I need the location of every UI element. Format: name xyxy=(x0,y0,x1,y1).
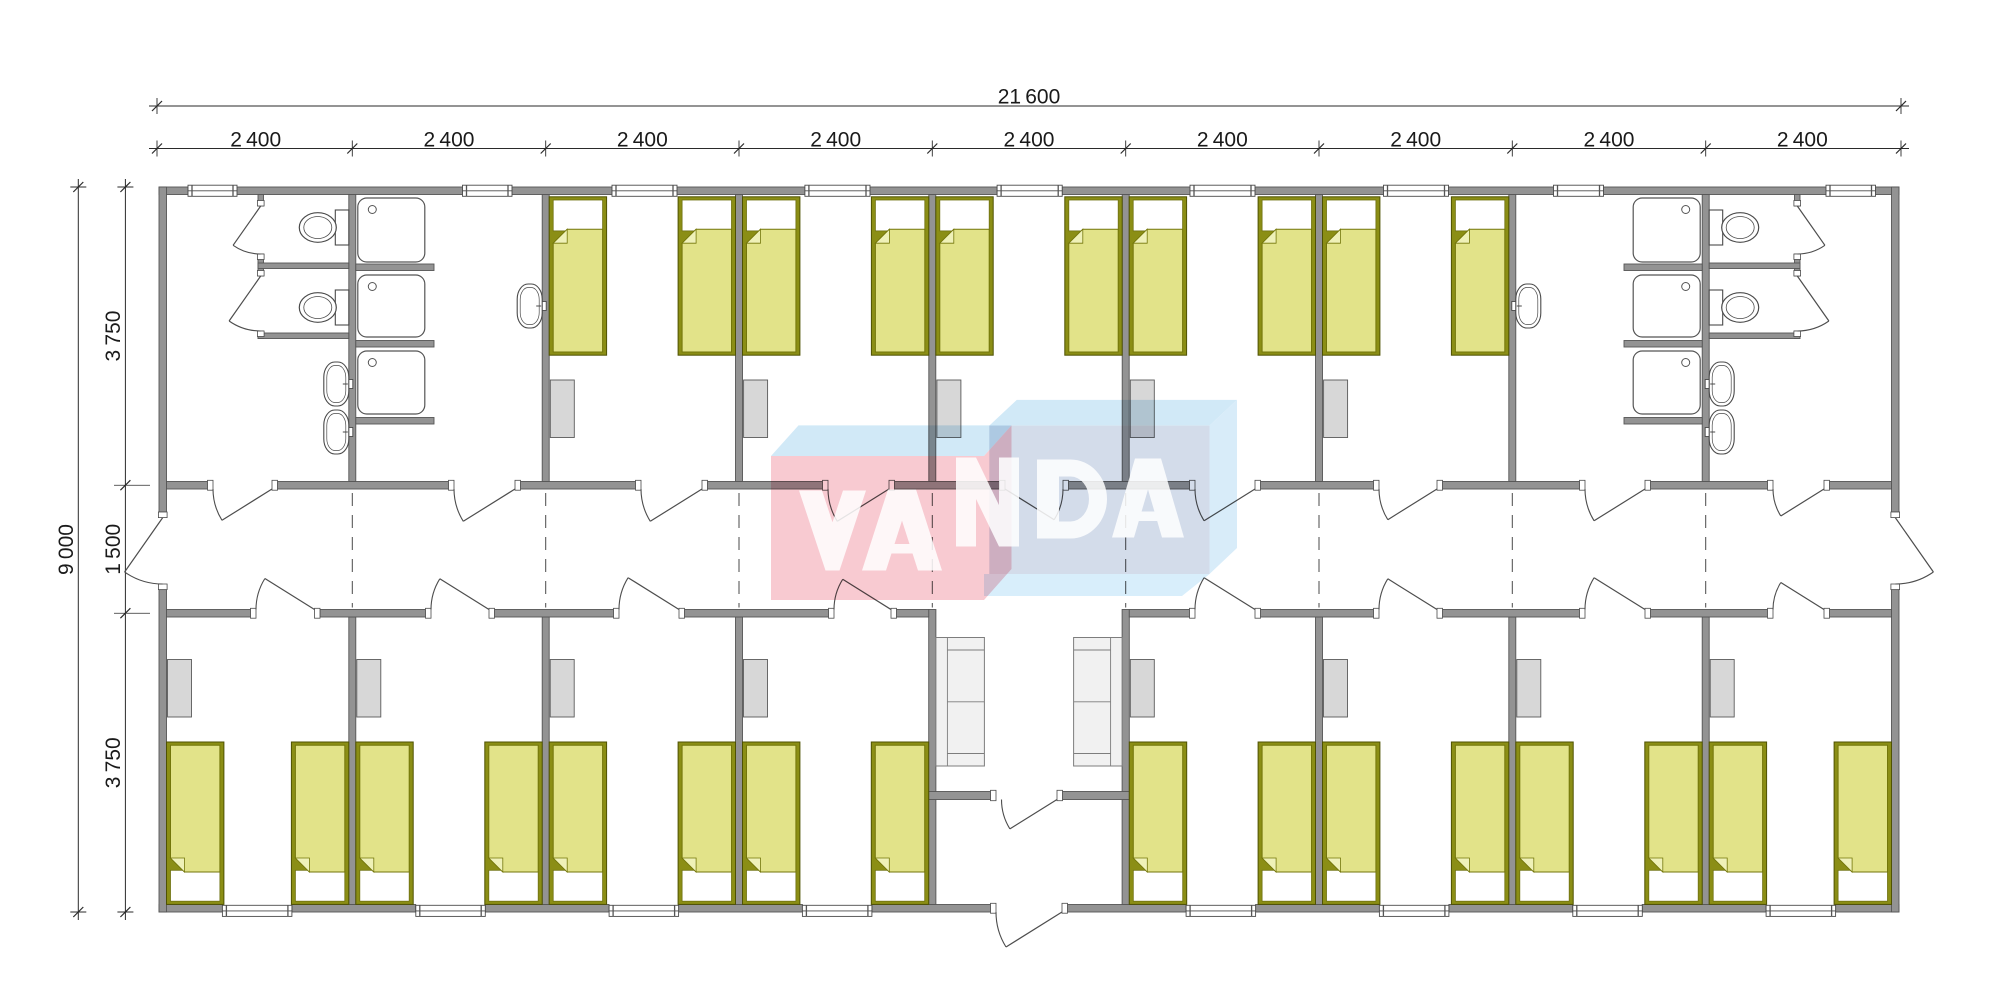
svg-text:21 600: 21 600 xyxy=(998,86,1061,109)
svg-text:2 400: 2 400 xyxy=(1777,129,1828,152)
svg-text:2 400: 2 400 xyxy=(1197,129,1248,152)
svg-text:3 750: 3 750 xyxy=(102,737,125,788)
svg-text:2 400: 2 400 xyxy=(424,129,475,152)
svg-text:2 400: 2 400 xyxy=(1390,129,1441,152)
svg-text:2 400: 2 400 xyxy=(1004,129,1055,152)
svg-text:2 400: 2 400 xyxy=(230,129,281,152)
svg-text:1 500: 1 500 xyxy=(102,524,125,575)
svg-text:2 400: 2 400 xyxy=(810,129,861,152)
svg-text:3 750: 3 750 xyxy=(102,311,125,362)
svg-text:9 000: 9 000 xyxy=(55,524,78,575)
svg-text:2 400: 2 400 xyxy=(1584,129,1635,152)
svg-text:2 400: 2 400 xyxy=(617,129,668,152)
